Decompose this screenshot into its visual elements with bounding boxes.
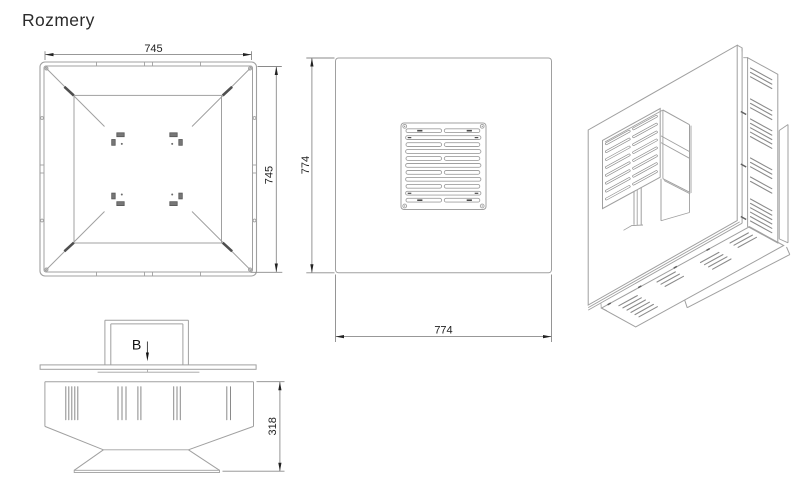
svg-text:B: B bbox=[132, 337, 141, 353]
svg-text:774: 774 bbox=[434, 325, 452, 337]
svg-text:745: 745 bbox=[144, 43, 162, 55]
svg-text:Rozmery: Rozmery bbox=[22, 10, 95, 30]
svg-text:745: 745 bbox=[263, 166, 275, 184]
svg-text:318: 318 bbox=[267, 417, 279, 435]
svg-text:774: 774 bbox=[300, 156, 312, 174]
